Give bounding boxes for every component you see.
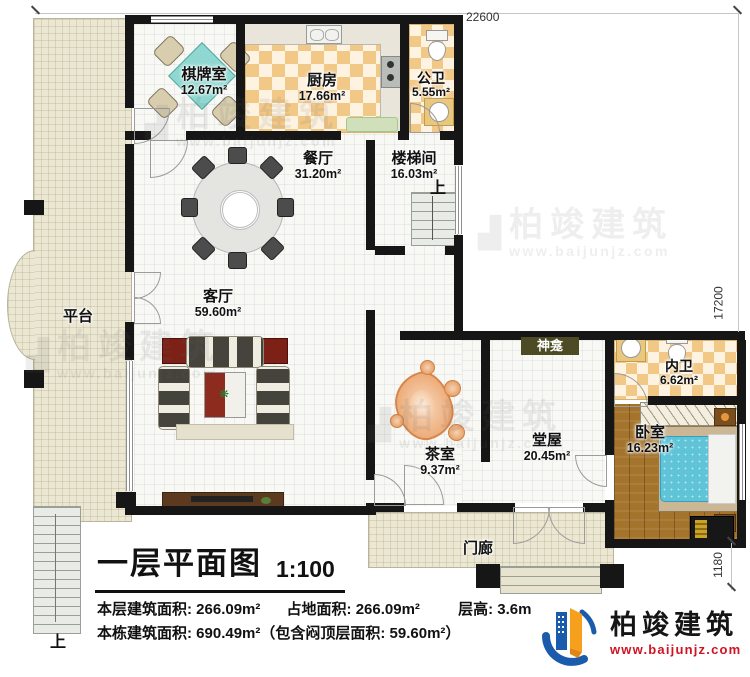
watermark-text: 柏竣建筑 <box>509 208 673 242</box>
side-table <box>162 338 188 364</box>
porch-steps <box>500 566 602 594</box>
logo-building-icon <box>538 602 600 666</box>
wall-segment <box>445 246 462 255</box>
interior-staircase <box>411 192 458 246</box>
exterior-stairs <box>33 506 81 634</box>
coffee-table-rug: ❋ <box>204 372 246 418</box>
window <box>151 16 213 23</box>
tv-icon <box>191 496 253 502</box>
cooktop <box>381 56 401 88</box>
plan-title: 一层平面图 <box>97 538 262 583</box>
sofa-left <box>158 366 190 430</box>
rug-border <box>176 424 294 440</box>
dining-chair <box>277 198 294 217</box>
wall-segment <box>236 15 245 140</box>
area-stats-line1: 本层建筑面积: 266.09m² 占地面积: 266.09m² 层高: 3.6m <box>97 598 531 619</box>
room-label-kitchen: 厨房17.66m² <box>299 72 346 104</box>
dimension-line-right-lower <box>731 543 732 590</box>
stairs-up-label: 上 <box>430 174 446 198</box>
wall-segment <box>454 15 463 165</box>
wall-segment <box>400 15 409 140</box>
burner <box>387 61 394 68</box>
gold-decor <box>695 520 707 538</box>
dimension-top-value: 22600 <box>466 10 499 24</box>
watermark-url: www.baijunjz.com <box>509 242 673 260</box>
watermark-logo-icon: ▟ <box>478 219 501 249</box>
toilet-tank <box>426 30 448 41</box>
wall-segment <box>125 15 134 108</box>
dimension-line-top <box>35 13 738 14</box>
wall-segment <box>366 140 375 250</box>
exterior-stairs-arrow <box>55 514 56 622</box>
column <box>24 200 44 215</box>
pebble <box>448 424 465 441</box>
lamp-icon <box>721 413 729 421</box>
company-name: 柏竣建筑 <box>610 612 741 639</box>
window <box>455 166 462 234</box>
wall-segment <box>125 144 134 272</box>
area-stats-line2: 本栋建筑面积: 690.49m²（包含闷顶层面积: 59.60m²） <box>97 622 460 643</box>
title-block: 一层平面图 1:100 <box>95 538 345 593</box>
room-label-bedroom: 卧室16.23m² <box>627 424 674 456</box>
side-table <box>262 338 288 364</box>
wall-segment <box>605 340 614 455</box>
sink-icon <box>621 338 641 358</box>
room-label-living: 客厅59.60m² <box>195 288 242 320</box>
column <box>24 370 44 388</box>
stair-arrow <box>432 196 433 240</box>
floor-plan-canvas: ❋ <box>0 0 750 677</box>
land-area: 占地面积: 266.09m² <box>287 601 420 618</box>
porch-column <box>600 564 624 588</box>
room-label-chess-room: 棋牌室12.67m² <box>181 66 228 98</box>
floor-area: 本层建筑面积: 266.09m² <box>97 601 260 618</box>
platform-bay-curve <box>7 250 35 360</box>
sofa-right <box>256 366 290 430</box>
porch-column <box>476 564 500 588</box>
wall-segment <box>186 131 341 140</box>
wall-segment <box>583 503 614 512</box>
bed-pillow-sheet <box>708 434 736 504</box>
pebble <box>444 380 461 397</box>
platform-floor <box>33 18 132 522</box>
sink-basin <box>325 29 339 41</box>
plan-scale: 1:100 <box>276 556 335 583</box>
dining-chair <box>181 198 198 217</box>
room-label-dining: 餐厅31.20m² <box>295 150 342 182</box>
wall-segment <box>605 539 746 548</box>
wall-segment <box>375 246 405 255</box>
floor-height: 层高: 3.6m <box>458 601 531 618</box>
dimension-line-right <box>738 13 739 332</box>
pebble <box>390 414 404 428</box>
exterior-stairs-up-label: 上 <box>50 628 66 652</box>
plant-icon: ❋ <box>219 388 231 400</box>
kitchen-sink <box>306 25 342 44</box>
wall-segment <box>125 506 376 515</box>
room-label-ensuite-bath: 内卫6.62m² <box>660 358 698 388</box>
room-label-main-hall: 堂屋20.45m² <box>524 432 571 464</box>
pebble <box>420 360 435 375</box>
porch-label: 门廊 <box>463 540 493 557</box>
window <box>739 424 745 500</box>
column <box>116 492 136 508</box>
platform-label: 平台 <box>63 308 93 325</box>
dimension-right-lower-value: 1180 <box>711 552 725 578</box>
wall-segment <box>366 331 375 340</box>
burner <box>387 74 394 81</box>
shrine-label: 神龛 <box>521 337 579 355</box>
dining-table-center <box>220 190 260 230</box>
company-logo: 柏竣建筑 www.baijunjz.com <box>538 602 741 666</box>
company-website: www.baijunjz.com <box>610 642 741 657</box>
nightstand <box>714 408 736 426</box>
wall-segment <box>125 322 134 360</box>
wall-segment <box>398 131 408 140</box>
dimension-right-value: 17200 <box>712 286 726 319</box>
dining-chair <box>228 147 247 164</box>
dining-chair <box>228 252 247 269</box>
sink-basin <box>310 29 324 41</box>
room-label-tea-room: 茶室9.37m² <box>420 446 460 478</box>
wall-segment <box>481 340 490 462</box>
kitchen-mat <box>346 117 398 132</box>
room-label-public-bath: 公卫5.55m² <box>412 70 450 100</box>
turtle-decor <box>261 497 271 504</box>
sofa-main <box>186 336 264 368</box>
watermark: ▟ 柏竣建筑www.baijunjz.com <box>478 208 673 260</box>
window <box>126 361 133 491</box>
wall-segment <box>457 503 515 512</box>
wall-segment <box>648 396 737 405</box>
